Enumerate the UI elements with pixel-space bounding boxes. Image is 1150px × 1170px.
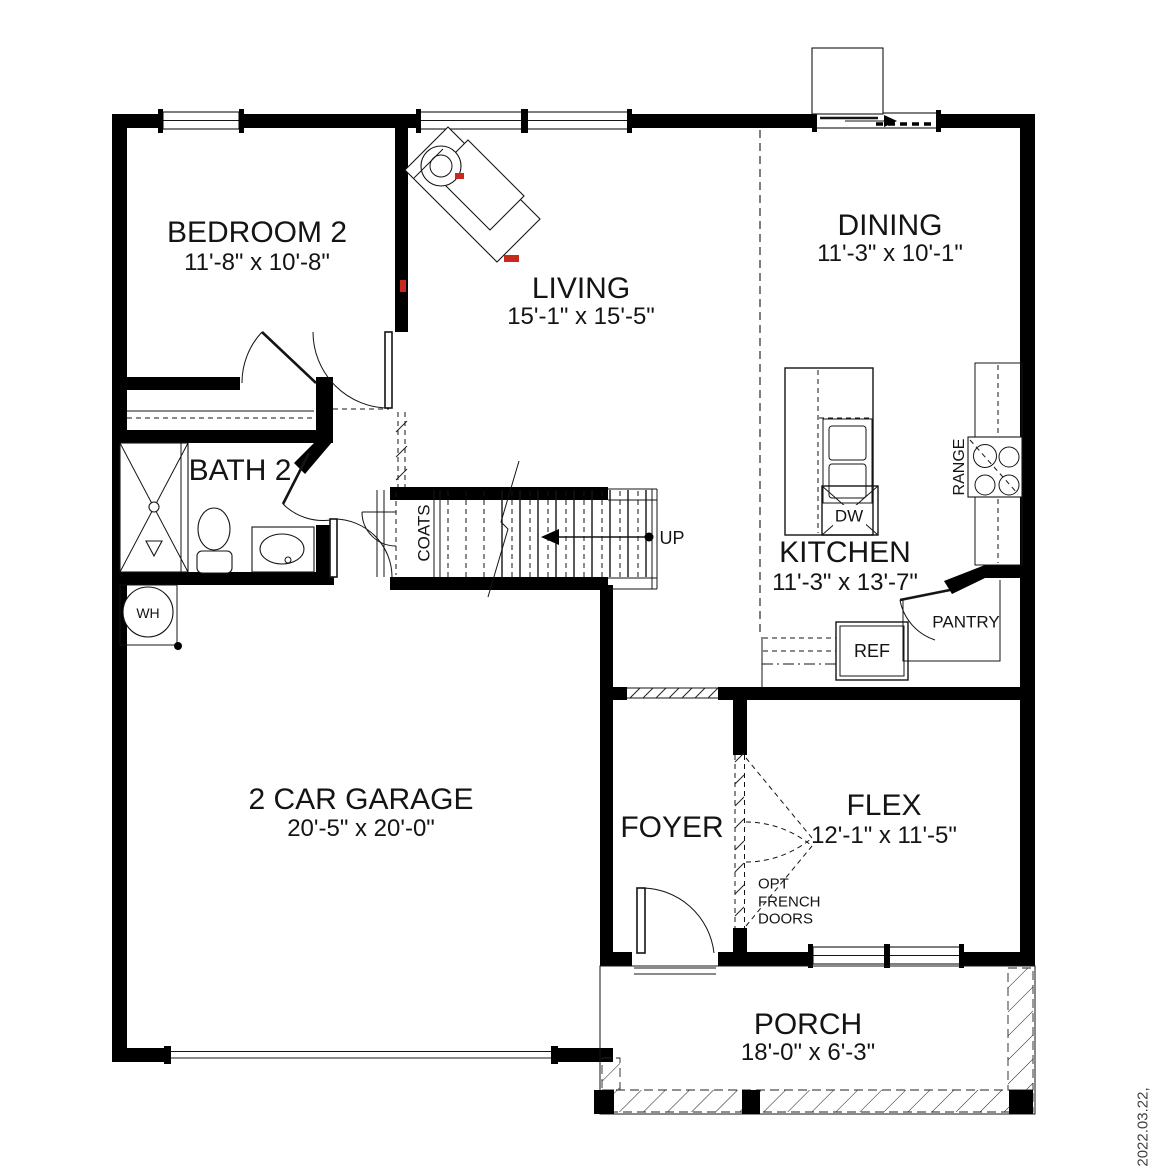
french-doors-note-1: OPT xyxy=(758,877,789,892)
bedroom-closet xyxy=(127,411,314,418)
toilet xyxy=(197,508,232,573)
up-label: UP xyxy=(659,529,684,547)
room-dims-kitchen: 11'-3" x 13'-7" xyxy=(772,571,918,595)
hall-door xyxy=(330,519,392,577)
room-label-garage: 2 CAR GARAGE xyxy=(248,785,473,815)
porch-hatch-left xyxy=(602,1058,620,1090)
date-stamp: 2022.03.22, xyxy=(1136,1087,1150,1166)
porch-hatch-right xyxy=(1008,968,1033,1090)
range-counter xyxy=(968,363,1022,565)
bedroom2-window xyxy=(158,109,244,133)
pantry-label: PANTRY xyxy=(932,614,999,631)
room-label-living: LIVING xyxy=(532,274,630,304)
porch-hatch-bottom xyxy=(602,1090,1033,1112)
french-doors-note-3: DOORS xyxy=(758,912,813,927)
coats-label: COATS xyxy=(416,504,433,561)
porch-column xyxy=(742,1090,760,1114)
room-label-flex: FLEX xyxy=(846,791,921,821)
refrigerator-label: REF xyxy=(854,642,890,660)
floorplan-page: BEDROOM 2 11'-8" x 10'-8" LIVING 15'-1" … xyxy=(0,0,1150,1170)
pantry-angled-wall xyxy=(944,565,985,594)
kitchen-island xyxy=(785,368,878,535)
range-label: RANGE xyxy=(952,439,968,496)
dining-sliding-door xyxy=(812,48,941,132)
kitchen-sink xyxy=(823,419,872,503)
cased-opening xyxy=(627,688,718,698)
room-label-bedroom2: BEDROOM 2 xyxy=(167,218,347,248)
stair-break-line xyxy=(488,461,519,597)
room-dims-garage: 20'-5" x 20'-0" xyxy=(287,817,435,841)
room-dims-bedroom2: 11'-8" x 10'-8" xyxy=(184,251,330,275)
dishwasher-label: DW xyxy=(835,508,863,525)
room-dims-flex: 12'-1" x 11'-5" xyxy=(811,824,957,848)
french-doors-note-2: FRENCH xyxy=(758,895,821,910)
room-label-foyer: FOYER xyxy=(620,813,723,843)
chimney-box xyxy=(812,48,883,114)
porch-column xyxy=(1009,1090,1033,1114)
vanity-sink xyxy=(252,527,314,572)
room-dims-porch: 18'-0" x 6'-3" xyxy=(741,1041,875,1065)
floorplan-drawing xyxy=(0,0,1150,1170)
fireplace xyxy=(405,127,540,262)
room-label-bath2: BATH 2 xyxy=(189,456,292,486)
room-label-porch: PORCH xyxy=(754,1010,862,1040)
water-heater-label: WH xyxy=(136,606,159,620)
shower xyxy=(120,443,188,572)
room-label-kitchen: KITCHEN xyxy=(779,538,911,568)
room-dims-dining: 11'-3" x 10'-1" xyxy=(817,242,963,266)
room-dims-living: 15'-1" x 15'-5" xyxy=(507,305,655,329)
up-arrow xyxy=(541,529,654,545)
room-label-dining: DINING xyxy=(838,211,943,241)
flex-window xyxy=(808,944,964,968)
porch-column xyxy=(594,1090,614,1114)
kitchen-counter-left xyxy=(762,637,836,688)
